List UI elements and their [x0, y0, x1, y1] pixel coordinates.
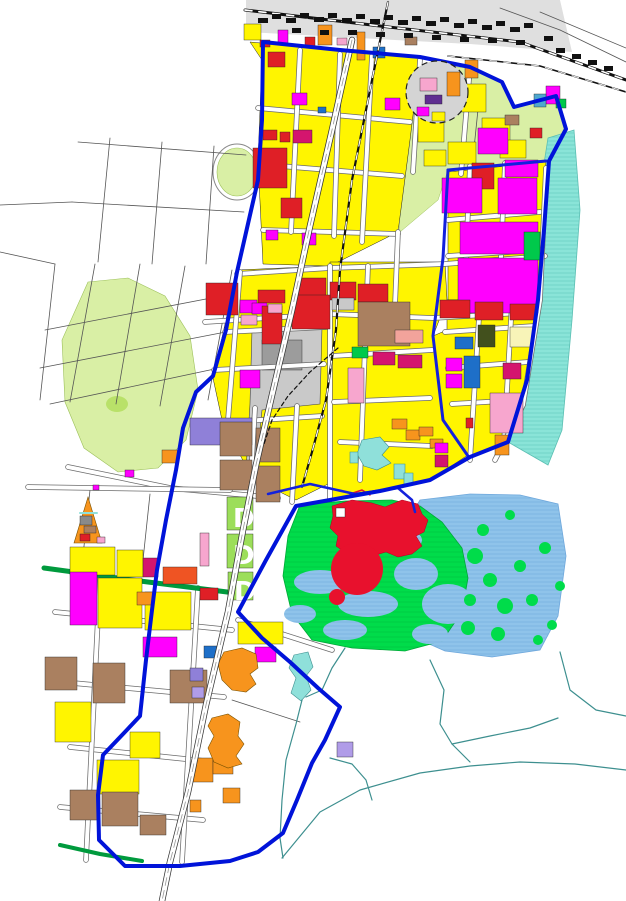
lake-islet	[497, 598, 513, 614]
parcel	[446, 374, 462, 388]
building	[328, 13, 337, 18]
park-feature-court	[336, 508, 345, 517]
lake-islet	[514, 560, 526, 572]
parcel	[419, 427, 433, 436]
building	[404, 33, 413, 38]
lake-islet	[547, 620, 557, 630]
village-building	[97, 537, 105, 543]
parcel	[268, 304, 282, 313]
parcel	[503, 363, 521, 379]
old-town-parcel	[417, 107, 429, 116]
lake-islet	[483, 573, 497, 587]
lake-islet	[491, 627, 505, 641]
lake-islet	[505, 510, 515, 520]
parcel	[256, 466, 280, 502]
parcel	[352, 347, 368, 358]
park-lake-channel	[284, 605, 316, 623]
park-lake-channel	[323, 620, 367, 640]
building	[572, 54, 581, 59]
parcel	[337, 742, 353, 757]
building	[320, 30, 329, 35]
parcel	[446, 358, 462, 371]
parcel	[200, 588, 218, 600]
building	[524, 23, 533, 28]
parcel	[292, 93, 307, 105]
parcel	[93, 485, 99, 490]
parcel	[405, 37, 417, 45]
building	[314, 17, 324, 22]
parcel	[455, 337, 473, 349]
building	[384, 15, 393, 20]
lake-islet	[526, 594, 538, 606]
park-lake-channel	[338, 591, 398, 617]
parcel	[510, 304, 536, 320]
parcel	[263, 130, 277, 140]
parcel	[281, 198, 302, 218]
parcel	[98, 578, 142, 628]
building	[412, 16, 421, 21]
building	[300, 13, 309, 18]
parcel	[137, 592, 153, 605]
parcel	[190, 800, 201, 812]
building	[482, 25, 492, 30]
parcel	[93, 663, 125, 703]
parcel	[238, 622, 283, 644]
parcel	[478, 128, 508, 154]
building	[272, 14, 281, 19]
zoning-map: DDD	[0, 0, 626, 901]
building	[516, 40, 525, 45]
building	[286, 18, 296, 23]
parcel	[478, 325, 495, 347]
parcel	[385, 98, 400, 110]
building	[342, 18, 352, 23]
park-feature-circle	[331, 543, 383, 595]
parcel	[70, 572, 97, 625]
parcel	[466, 418, 473, 428]
building	[356, 14, 365, 19]
building	[488, 38, 497, 43]
pond	[394, 464, 405, 479]
parcel	[280, 132, 290, 142]
parcel	[45, 657, 77, 690]
lake-islet	[461, 621, 475, 635]
planning-map-canvas: DDD	[0, 0, 626, 901]
parcel	[464, 356, 480, 388]
parcel	[200, 533, 209, 566]
parcel	[358, 284, 388, 302]
building	[454, 23, 464, 28]
building	[432, 35, 441, 40]
park-lake-channel	[394, 558, 438, 590]
building	[292, 28, 301, 33]
parcel	[395, 330, 423, 343]
pond	[350, 452, 358, 463]
parcel	[337, 38, 347, 45]
parcel	[190, 668, 203, 681]
parcel	[435, 455, 448, 467]
parcel	[475, 302, 503, 320]
lake-islet	[477, 524, 489, 536]
parcel	[223, 788, 240, 803]
building	[348, 30, 357, 35]
parcel	[102, 792, 138, 826]
parcel	[125, 470, 134, 477]
parcel	[130, 732, 160, 758]
building	[376, 32, 385, 37]
village-land	[208, 714, 244, 768]
village-building	[80, 516, 92, 525]
building	[468, 19, 477, 24]
parcel	[398, 355, 422, 368]
building	[460, 37, 469, 42]
parcel	[448, 142, 476, 164]
parcel	[117, 550, 143, 577]
small-green-area	[217, 148, 257, 196]
parcel	[268, 52, 285, 67]
lake-islet	[464, 594, 476, 606]
old-town-parcel	[432, 112, 445, 121]
parcel	[163, 567, 197, 584]
lake-islet	[555, 581, 565, 591]
parcel	[348, 368, 364, 403]
parcel	[498, 178, 537, 214]
parcel	[435, 443, 448, 453]
old-town-parcel	[447, 72, 460, 96]
parcel	[266, 230, 278, 240]
old-town-parcel	[425, 95, 442, 104]
building	[588, 60, 597, 65]
village-building	[80, 534, 90, 541]
parcel	[140, 815, 166, 835]
parcel	[530, 128, 542, 138]
parcel	[220, 460, 252, 490]
building	[604, 66, 613, 71]
building	[510, 27, 520, 32]
building	[544, 36, 553, 41]
parcel	[192, 687, 204, 698]
parcel	[505, 115, 519, 125]
parcel	[440, 300, 470, 318]
building	[370, 19, 380, 24]
park-lake-channel	[412, 624, 448, 644]
parcel	[332, 298, 354, 310]
building	[258, 18, 268, 23]
building	[556, 48, 565, 53]
old-town-parcel	[420, 78, 437, 91]
building	[496, 21, 505, 26]
park-feature-circle-small	[329, 589, 345, 605]
parcel	[293, 130, 312, 143]
parcel	[318, 107, 326, 113]
lake-islet	[467, 548, 483, 564]
parcel	[406, 430, 420, 440]
parcel	[292, 295, 330, 329]
parcel	[510, 327, 533, 347]
parcel	[357, 32, 365, 60]
parcel	[70, 790, 100, 820]
parcel	[244, 24, 261, 40]
parcel	[240, 370, 260, 388]
parcel	[330, 282, 356, 300]
parcel	[241, 315, 257, 325]
parcel	[278, 30, 288, 43]
parcel	[424, 150, 446, 166]
parcel	[258, 290, 285, 303]
building	[398, 20, 408, 25]
village-building	[84, 526, 96, 533]
lake-islet	[539, 542, 551, 554]
parcel	[373, 352, 395, 365]
lake-islet	[533, 635, 543, 645]
parcel	[524, 232, 540, 260]
building	[426, 21, 436, 26]
parcel	[392, 419, 407, 429]
parcel	[55, 702, 91, 742]
parcel	[220, 422, 252, 456]
parcel	[70, 547, 115, 575]
building	[440, 17, 449, 22]
